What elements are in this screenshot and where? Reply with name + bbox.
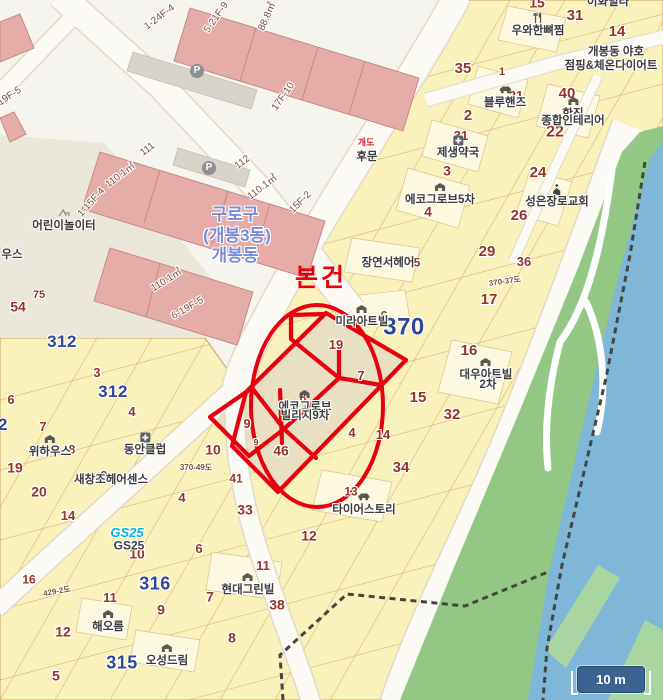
district-dong: 개봉동: [212, 247, 259, 265]
place-label: 에코그로브5차: [405, 182, 475, 206]
place-icon: [44, 434, 56, 445]
block-number: 315: [106, 654, 138, 673]
place-label: 타이어스토리: [332, 492, 395, 516]
parcel-number: 12: [301, 529, 317, 544]
parcel-number: 11: [256, 559, 270, 573]
parcel-number: 11: [103, 591, 117, 605]
parcel-number: 14: [609, 24, 626, 40]
place-name: 어린이놀이터: [32, 220, 95, 232]
place-label: 2차: [480, 379, 497, 391]
place-label: 어린이놀이터: [32, 208, 95, 232]
parcel-number: 17: [481, 292, 498, 308]
misc-label: P: [190, 64, 204, 78]
parcel-number: 6: [7, 393, 14, 407]
place-label: 장연서헤어: [362, 257, 415, 269]
block-number: 312: [98, 383, 128, 401]
district-sub: (개봉3동): [203, 227, 271, 245]
block-number: 312: [47, 333, 77, 351]
place-label: 해오름: [92, 609, 124, 633]
parcel-number: 5: [52, 669, 60, 684]
place-name: 후문: [356, 151, 377, 163]
place-label: 대우아트빌: [460, 357, 513, 381]
place-name: 이화빌라: [587, 0, 629, 8]
place-label: 점핑&체온다이어트: [565, 60, 658, 72]
parcel-number: 54: [10, 300, 26, 315]
parcel-number: 26: [511, 208, 528, 224]
place-icon: [498, 85, 511, 96]
parcel-number: 10: [205, 443, 221, 458]
block-number: 2: [0, 416, 8, 434]
place-icon: [551, 184, 562, 195]
place-label: 후문: [356, 151, 377, 163]
place-icon: [161, 643, 173, 654]
parcel-number: 14: [61, 509, 75, 523]
place-icon: [58, 208, 70, 219]
parcel-number: 7: [357, 369, 364, 383]
place-icon: [533, 13, 544, 24]
place-label: 성은장로교회: [525, 184, 588, 208]
place-label: 제생약국: [437, 135, 479, 159]
parcel-number: 5: [414, 257, 421, 270]
place-name: 동안클럽: [124, 444, 166, 456]
place-icon: [357, 492, 370, 503]
place-name: 우와한뼈찜: [512, 25, 565, 37]
parcel-number: 15: [529, 0, 545, 10]
place-label: 빌리지9차: [281, 410, 330, 422]
scale-bar-label: 10 m: [596, 672, 626, 687]
parcel-number: 8: [228, 631, 236, 646]
parcel-number: 2: [464, 108, 472, 124]
parcel-number: 35: [455, 61, 472, 77]
place-label: 현대그린빌: [222, 572, 275, 596]
district-name: 구로구: [212, 206, 259, 224]
place-label: 개봉동 야호: [588, 46, 644, 58]
place-label: 블루핸즈: [484, 85, 526, 109]
misc-label: GS25: [114, 540, 145, 553]
parcel-number: 29: [479, 244, 496, 260]
place-label: 동안클럽: [124, 432, 166, 456]
place-icon: [102, 609, 114, 620]
place-name: 블루핸즈: [484, 97, 526, 109]
place-name: 에코그로브5차: [405, 194, 475, 206]
place-icon: [242, 572, 254, 583]
parcel-number: 34: [393, 460, 410, 476]
parcel-number: 4: [128, 405, 135, 419]
misc-label: P: [202, 161, 216, 175]
parcel-number: 16: [22, 574, 35, 587]
parcel-number: 75: [33, 290, 45, 302]
parcel-number: 4: [178, 491, 185, 505]
place-name: 장연서헤어: [362, 257, 415, 269]
place-name: 성은장로교회: [525, 196, 588, 208]
parcel-number: 14: [376, 428, 390, 442]
place-name: 타이어스토리: [332, 504, 395, 516]
misc-label: 개도: [358, 138, 375, 147]
place-label: 이화빌라: [587, 0, 629, 8]
place-name: 오성드림: [146, 655, 188, 667]
place-label: 새창조헤어센스: [74, 474, 148, 486]
place-name: 개봉동 야호: [588, 46, 644, 58]
parcel-number: 19: [7, 461, 23, 476]
place-icon: [452, 135, 463, 146]
parcel-number: 46: [273, 444, 289, 459]
parcel-number: 15: [410, 390, 427, 406]
place-icon: [356, 304, 368, 315]
parcel-number: 4: [424, 205, 432, 220]
block-number: 316: [139, 575, 171, 594]
parcel-number: 38: [269, 598, 285, 613]
place-name: 해오름: [92, 621, 124, 633]
parcel-number: 3: [93, 366, 100, 380]
place-label: 오성드림: [146, 643, 188, 667]
place-icon: [567, 96, 579, 107]
subject-marker: 본건: [295, 265, 347, 291]
parcel-number: 7: [39, 420, 46, 434]
place-icon: [299, 389, 311, 400]
road-lot-number: 370-49도: [180, 464, 212, 472]
scale-bar: 10 m: [577, 666, 645, 693]
parcel-number: 32: [444, 407, 461, 423]
place-icon: [139, 432, 150, 443]
parcel-number: 41: [229, 473, 242, 486]
parcel-number: 31: [567, 8, 584, 24]
place-label: 위하우스: [29, 434, 71, 458]
parcel-number: 9: [243, 417, 250, 431]
place-label: 우스: [1, 249, 22, 261]
place-name: 종합인테리어: [541, 115, 604, 127]
place-icon: [480, 357, 492, 368]
cadastral-map: 3512123134153114402224262936171632153414…: [0, 0, 663, 700]
place-name: 빌리지9차: [281, 410, 330, 422]
place-name: 새창조헤어센스: [74, 474, 148, 486]
block-number: 370: [383, 314, 425, 339]
place-label: 우와한뼈찜: [512, 13, 565, 37]
place-name: 우스: [1, 249, 22, 261]
parcel-number: 24: [530, 165, 547, 181]
parcel-number: 4: [348, 426, 355, 440]
place-icon: [434, 182, 446, 193]
place-label: 미라아트빌: [336, 304, 389, 328]
place-name: 위하우스: [29, 446, 71, 458]
place-name: 점핑&체온다이어트: [565, 60, 658, 72]
parcel-number: 22: [546, 125, 564, 142]
parcel-number: 1: [499, 67, 505, 79]
parcel-number: 9: [253, 438, 258, 447]
parcel-number: 7: [206, 590, 214, 605]
parcel-number: 20: [31, 485, 47, 500]
place-name: 현대그린빌: [222, 584, 275, 596]
parcel-number: 3: [443, 164, 451, 179]
place-name: 미라아트빌: [336, 316, 389, 328]
parcel-number: 9: [157, 603, 165, 618]
parcel-number: 12: [55, 625, 71, 640]
place-name: 2차: [480, 379, 497, 391]
parcel-number: 6: [195, 542, 202, 556]
parcel-number: 19: [329, 338, 343, 352]
place-name: 제생약국: [437, 147, 479, 159]
parcel-number: 33: [237, 503, 253, 518]
place-label: 종합인테리어: [541, 115, 604, 127]
parcel-number: 36: [517, 255, 531, 269]
